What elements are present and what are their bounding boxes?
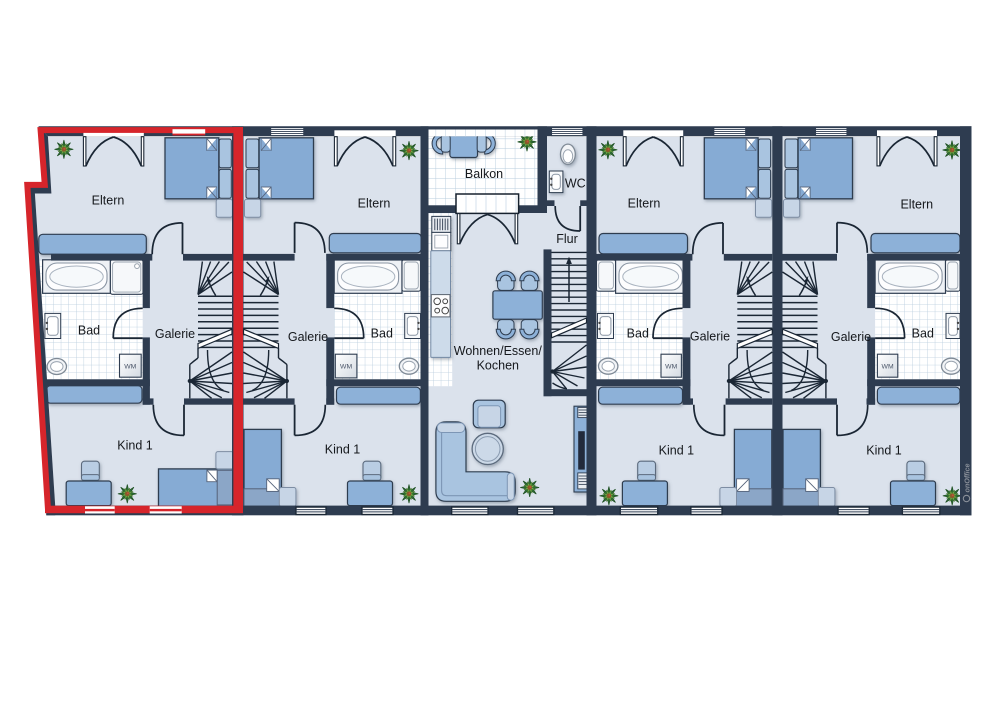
svg-text:WM: WM [124, 363, 136, 370]
svg-text:Balkon: Balkon [465, 167, 503, 181]
svg-text:Kind 1: Kind 1 [117, 438, 152, 452]
svg-text:WC: WC [565, 176, 586, 190]
svg-text:Kochen: Kochen [477, 358, 519, 372]
svg-text:Kind 1: Kind 1 [325, 442, 360, 456]
svg-text:Galerie: Galerie [831, 330, 871, 344]
svg-text:Galerie: Galerie [155, 327, 195, 341]
svg-text:WM: WM [665, 363, 677, 370]
svg-text:Eltern: Eltern [900, 197, 933, 211]
svg-text:Eltern: Eltern [628, 196, 661, 210]
svg-text:Eltern: Eltern [358, 196, 391, 210]
svg-text:Wohnen/Essen/: Wohnen/Essen/ [454, 344, 543, 358]
svg-text:Kind 1: Kind 1 [659, 444, 694, 458]
svg-text:Galerie: Galerie [288, 330, 328, 344]
svg-text:onOffice: onOffice [963, 463, 972, 492]
svg-text:Kind 1: Kind 1 [866, 444, 901, 458]
svg-text:Flur: Flur [556, 232, 578, 246]
svg-text:Bad: Bad [78, 323, 100, 337]
svg-text:Galerie: Galerie [690, 330, 730, 344]
svg-text:Eltern: Eltern [92, 194, 125, 208]
svg-text:WM: WM [882, 363, 894, 370]
svg-text:Bad: Bad [371, 327, 393, 341]
svg-text:WM: WM [340, 364, 352, 371]
svg-text:Bad: Bad [627, 327, 649, 341]
svg-text:Bad: Bad [912, 327, 934, 341]
